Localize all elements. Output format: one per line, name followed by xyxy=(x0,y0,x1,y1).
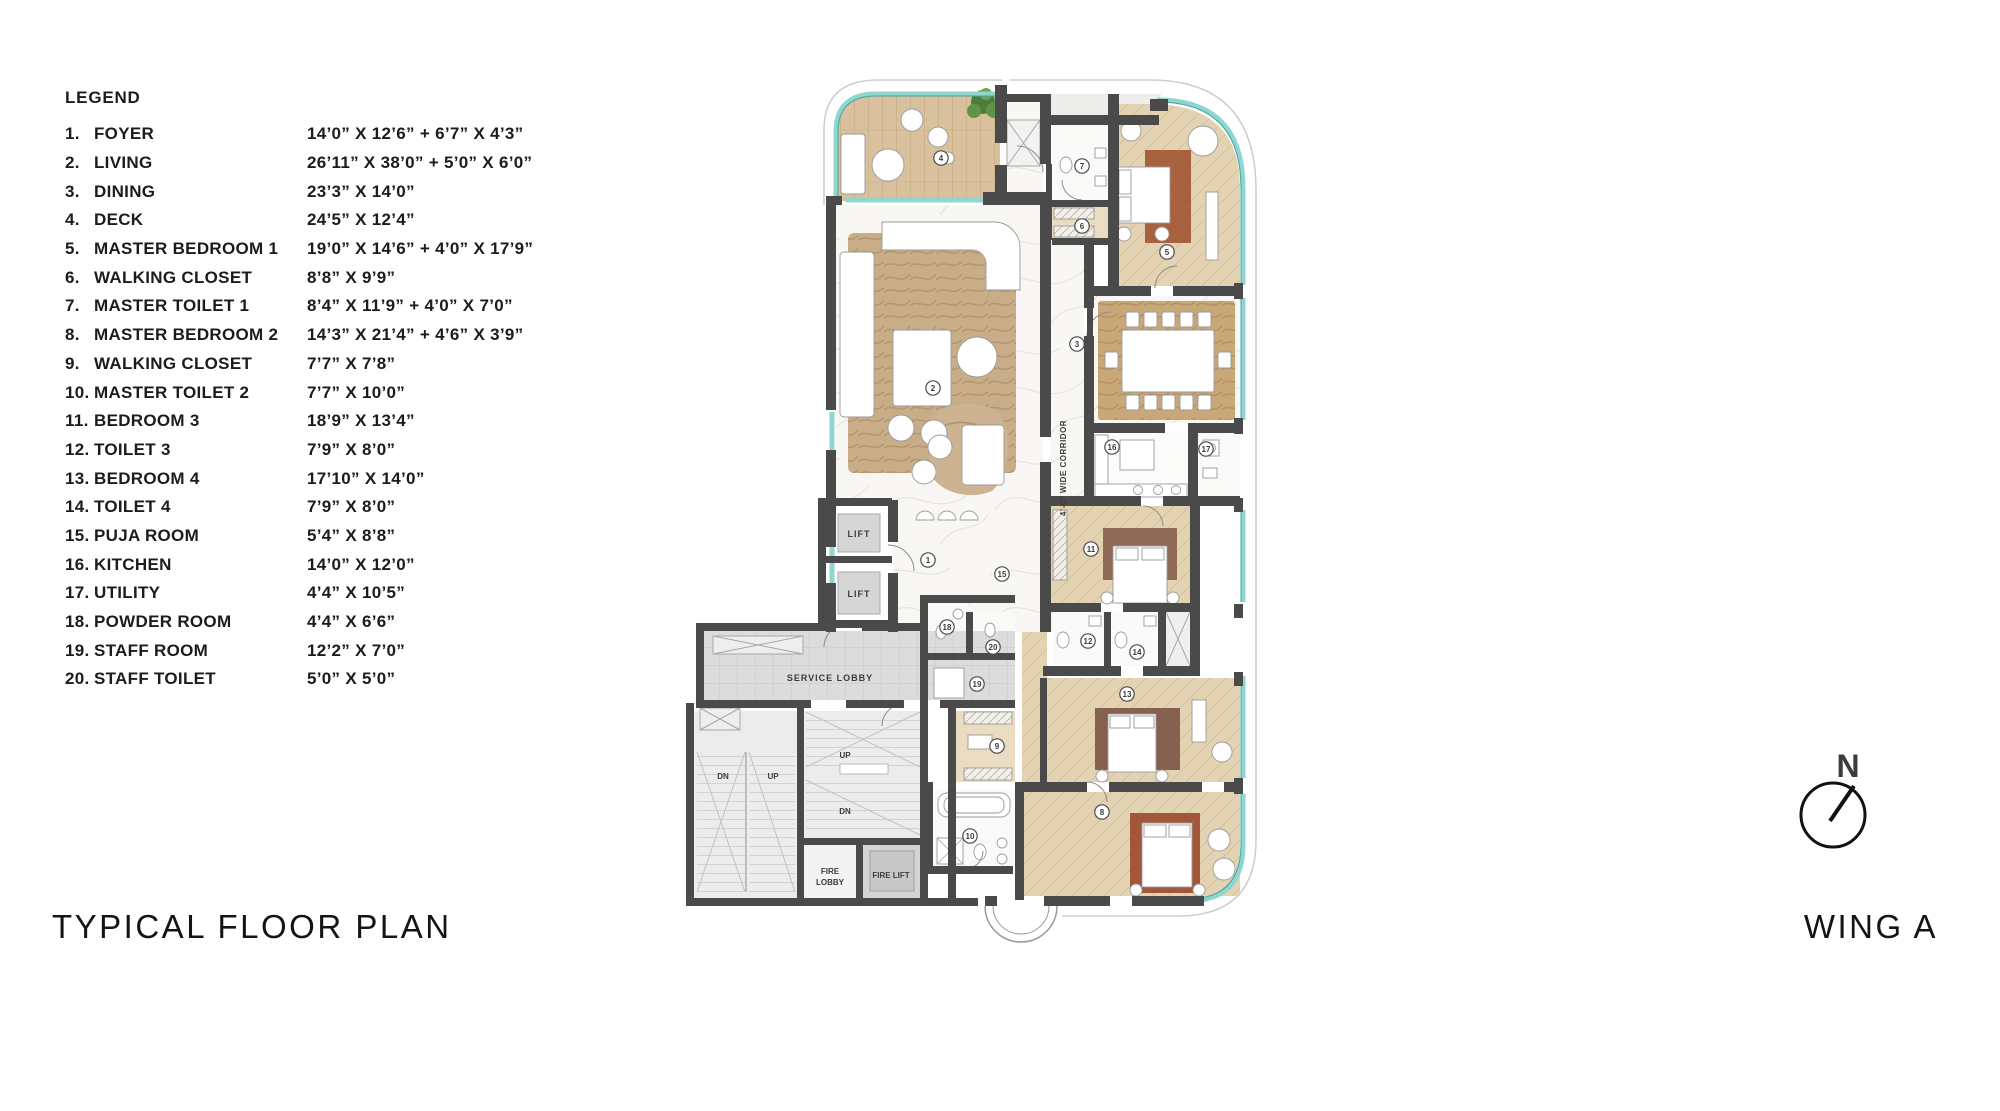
legend-item-dimensions: 7’7” X 10’0” xyxy=(307,383,533,403)
legend-item-name: TOILET 4 xyxy=(94,497,307,517)
legend-row: 13.BEDROOM 417’10” X 14’0” xyxy=(65,464,533,493)
entrance-arc xyxy=(985,906,1057,942)
coffee-table xyxy=(893,330,951,406)
deck-chair xyxy=(928,127,948,147)
legend-item-name: BEDROOM 4 xyxy=(94,469,307,489)
legend-item-dimensions: 14’0” X 12’0” xyxy=(307,555,533,575)
legend-row: 11.BEDROOM 318’9” X 13’4” xyxy=(65,407,533,436)
legend-item-number: 2. xyxy=(65,153,94,173)
legend-item-dimensions: 7’7” X 7’8” xyxy=(307,354,533,374)
legend-row: 15.PUJA ROOM5’4” X 8’8” xyxy=(65,522,533,551)
living-sofa xyxy=(840,252,874,417)
room-marker-number: 20 xyxy=(989,643,998,652)
legend-item-number: 3. xyxy=(65,182,94,202)
legend-item-number: 19. xyxy=(65,641,94,661)
legend-row: 4.DECK24’5” X 12’4” xyxy=(65,206,533,235)
utility-sink xyxy=(1203,468,1217,478)
legend-item-dimensions: 4’4” X 10’5” xyxy=(307,583,533,603)
legend-item-number: 20. xyxy=(65,669,94,689)
legend-row: 20.STAFF TOILET5’0” X 5’0” xyxy=(65,665,533,694)
legend-item-name: MASTER BEDROOM 1 xyxy=(94,239,307,259)
legend: LEGEND 1.FOYER14’0” X 12’6” + 6’7” X 4’3… xyxy=(65,88,533,694)
corridor-label: 4’-0” WIDE CORRIDOR xyxy=(1059,420,1068,516)
legend-row: 12.TOILET 37’9” X 8’0” xyxy=(65,436,533,465)
compass-needle xyxy=(1830,786,1854,821)
deck-sofa xyxy=(841,134,865,194)
legend-item-name: POWDER ROOM xyxy=(94,612,307,632)
legend-item-number: 4. xyxy=(65,210,94,230)
room-marker-number: 3 xyxy=(1075,340,1080,349)
legend-item-number: 11. xyxy=(65,411,94,431)
lounge-chair xyxy=(912,460,936,484)
legend-item-name: MASTER BEDROOM 2 xyxy=(94,325,307,345)
room-marker-number: 6 xyxy=(1080,222,1085,231)
room-marker-number: 13 xyxy=(1123,690,1132,699)
legend-row: 2.LIVING26’11” X 38’0” + 5’0” X 6’0” xyxy=(65,149,533,178)
legend-item-name: PUJA ROOM xyxy=(94,526,307,546)
legend-row: 1.FOYER14’0” X 12’6” + 6’7” X 4’3” xyxy=(65,120,533,149)
room-marker-number: 4 xyxy=(939,154,944,163)
mb2-chair xyxy=(1208,829,1230,851)
fire-lobby-label: FIRE xyxy=(821,867,840,876)
room-marker-number: 12 xyxy=(1084,637,1093,646)
mb1-ottoman xyxy=(1155,227,1169,241)
room-marker-number: 1 xyxy=(926,556,931,565)
b4-chair xyxy=(1212,742,1232,762)
legend-item-name: STAFF ROOM xyxy=(94,641,307,661)
legend-row: 8.MASTER BEDROOM 214’3” X 21’4” + 4’6” X… xyxy=(65,321,533,350)
legend-item-dimensions: 23’3” X 14’0” xyxy=(307,182,533,202)
c9-dresser xyxy=(968,735,992,749)
legend-item-number: 9. xyxy=(65,354,94,374)
legend-item-dimensions: 7’9” X 8’0” xyxy=(307,440,533,460)
legend-item-dimensions: 5’4” X 8’8” xyxy=(307,526,533,546)
toilet7-sink xyxy=(1095,176,1106,186)
mb2-chair xyxy=(1213,858,1235,880)
legend-row: 16.KITCHEN14’0” X 12’0” xyxy=(65,550,533,579)
legend-row: 6.WALKING CLOSET8’8” X 9’9” xyxy=(65,263,533,292)
legend-item-name: STAFF TOILET xyxy=(94,669,307,689)
legend-item-name: UTILITY xyxy=(94,583,307,603)
legend-item-name: TOILET 3 xyxy=(94,440,307,460)
sheet-title: TYPICAL FLOOR PLAN xyxy=(52,908,452,946)
legend-item-dimensions: 5’0” X 5’0” xyxy=(307,669,533,689)
legend-item-dimensions: 4’4” X 6’6” xyxy=(307,612,533,632)
legend-item-number: 12. xyxy=(65,440,94,460)
legend-item-name: MASTER TOILET 1 xyxy=(94,296,307,316)
room-marker-number: 2 xyxy=(931,384,936,393)
north-label: N xyxy=(1836,748,1859,784)
room-marker-number: 19 xyxy=(973,680,982,689)
legend-item-dimensions: 14’0” X 12’6” + 6’7” X 4’3” xyxy=(307,124,533,144)
legend-item-dimensions: 12’2” X 7’0” xyxy=(307,641,533,661)
legend-title: LEGEND xyxy=(65,88,533,108)
legend-item-number: 17. xyxy=(65,583,94,603)
b3-wardrobe xyxy=(1053,510,1067,580)
legend-row: 18.POWDER ROOM4’4” X 6’6” xyxy=(65,608,533,637)
legend-item-name: LIVING xyxy=(94,153,307,173)
legend-item-name: BEDROOM 3 xyxy=(94,411,307,431)
room-marker-number: 7 xyxy=(1080,162,1085,171)
compass: N xyxy=(1796,745,1896,860)
legend-row: 10.MASTER TOILET 27’7” X 10’0” xyxy=(65,378,533,407)
legend-item-dimensions: 8’4” X 11’9” + 4’0” X 7’0” xyxy=(307,296,533,316)
legend-item-dimensions: 26’11” X 38’0” + 5’0” X 6’0” xyxy=(307,153,533,173)
fire-lift-label: FIRE LIFT xyxy=(872,871,909,880)
legend-item-number: 18. xyxy=(65,612,94,632)
room-marker-number: 16 xyxy=(1108,443,1117,452)
mb1-round-table xyxy=(1188,126,1218,156)
room-marker-number: 14 xyxy=(1133,648,1142,657)
lift-label: LIFT xyxy=(848,589,871,599)
legend-row: 9.WALKING CLOSET7’7” X 7’8” xyxy=(65,350,533,379)
up-label: UP xyxy=(839,751,851,760)
up-label: UP xyxy=(767,772,779,781)
room-marker-number: 18 xyxy=(943,623,952,632)
lift-label: LIFT xyxy=(848,529,871,539)
legend-item-number: 14. xyxy=(65,497,94,517)
dining-table xyxy=(1122,330,1214,392)
legend-item-number: 5. xyxy=(65,239,94,259)
legend-rows: 1.FOYER14’0” X 12’6” + 6’7” X 4’3”2.LIVI… xyxy=(65,120,533,694)
staff-wc xyxy=(985,623,995,637)
legend-item-name: WALKING CLOSET xyxy=(94,268,307,288)
legend-item-name: DECK xyxy=(94,210,307,230)
floor-plan-sheet: LEGEND 1.FOYER14’0” X 12’6” + 6’7” X 4’3… xyxy=(0,0,2000,1111)
dn-label: DN xyxy=(839,807,851,816)
legend-item-number: 15. xyxy=(65,526,94,546)
legend-item-name: FOYER xyxy=(94,124,307,144)
pouf xyxy=(957,337,997,377)
deck-chair xyxy=(901,109,923,131)
legend-row: 5.MASTER BEDROOM 119’0” X 14’6” + 4’0” X… xyxy=(65,235,533,264)
c9-wardrobe xyxy=(964,768,1012,780)
legend-item-number: 7. xyxy=(65,296,94,316)
legend-item-dimensions: 24’5” X 12’4” xyxy=(307,210,533,230)
legend-row: 7.MASTER TOILET 18’4” X 11’9” + 4’0” X 7… xyxy=(65,292,533,321)
room-marker-number: 17 xyxy=(1202,445,1211,454)
toilet7-sink xyxy=(1095,148,1106,158)
legend-item-number: 8. xyxy=(65,325,94,345)
deck-table xyxy=(872,149,904,181)
legend-item-name: WALKING CLOSET xyxy=(94,354,307,374)
room-marker-number: 9 xyxy=(995,742,1000,751)
legend-item-name: DINING xyxy=(94,182,307,202)
lounge-chair xyxy=(928,435,952,459)
armchair xyxy=(888,415,914,441)
legend-item-dimensions: 7’9” X 8’0” xyxy=(307,497,533,517)
room-marker-number: 10 xyxy=(966,832,975,841)
room-marker-number: 8 xyxy=(1100,808,1105,817)
service-lobby-label: SERVICE LOBBY xyxy=(787,673,873,683)
c9-wardrobe xyxy=(964,712,1012,724)
legend-row: 19.STAFF ROOM12’2” X 7’0” xyxy=(65,636,533,665)
lounge-sofa xyxy=(962,425,1004,485)
mb1-console xyxy=(1206,192,1218,260)
fire-lobby-label: LOBBY xyxy=(816,878,845,887)
legend-item-number: 16. xyxy=(65,555,94,575)
legend-item-name: MASTER TOILET 2 xyxy=(94,383,307,403)
legend-item-dimensions: 19’0” X 14’6” + 4’0” X 17’9” xyxy=(307,239,533,259)
floor-plan-drawing: LIFT LIFT SERVICE LOBBY FIRE LOBBY FIRE … xyxy=(660,60,1260,950)
kitchen-island xyxy=(1120,440,1154,470)
legend-item-number: 10. xyxy=(65,383,94,403)
legend-item-dimensions: 17’10” X 14’0” xyxy=(307,469,533,489)
legend-item-number: 13. xyxy=(65,469,94,489)
toilet14-wc xyxy=(1115,632,1127,648)
dn-label: DN xyxy=(717,772,729,781)
mb1-ottoman xyxy=(1117,227,1131,241)
room-marker-number: 11 xyxy=(1087,545,1096,554)
legend-item-dimensions: 18’9” X 13’4” xyxy=(307,411,533,431)
legend-row: 3.DINING23’3” X 14’0” xyxy=(65,177,533,206)
toilet7-wc xyxy=(1060,157,1072,173)
legend-row: 14.TOILET 47’9” X 8’0” xyxy=(65,493,533,522)
wing-label: WING A xyxy=(1804,908,1938,946)
mt2-wc xyxy=(974,844,986,860)
legend-item-number: 1. xyxy=(65,124,94,144)
c6-wardrobe xyxy=(1054,208,1094,219)
legend-item-number: 6. xyxy=(65,268,94,288)
b4-desk xyxy=(1192,700,1206,742)
room-marker-number: 15 xyxy=(998,570,1007,579)
legend-item-dimensions: 8’8” X 9’9” xyxy=(307,268,533,288)
legend-row: 17.UTILITY4’4” X 10’5” xyxy=(65,579,533,608)
staff-bed xyxy=(934,668,964,698)
room-marker-number: 5 xyxy=(1165,248,1170,257)
legend-item-dimensions: 14’3” X 21’4” + 4’6” X 3’9” xyxy=(307,325,533,345)
toilet12-wc xyxy=(1057,632,1069,648)
legend-item-name: KITCHEN xyxy=(94,555,307,575)
